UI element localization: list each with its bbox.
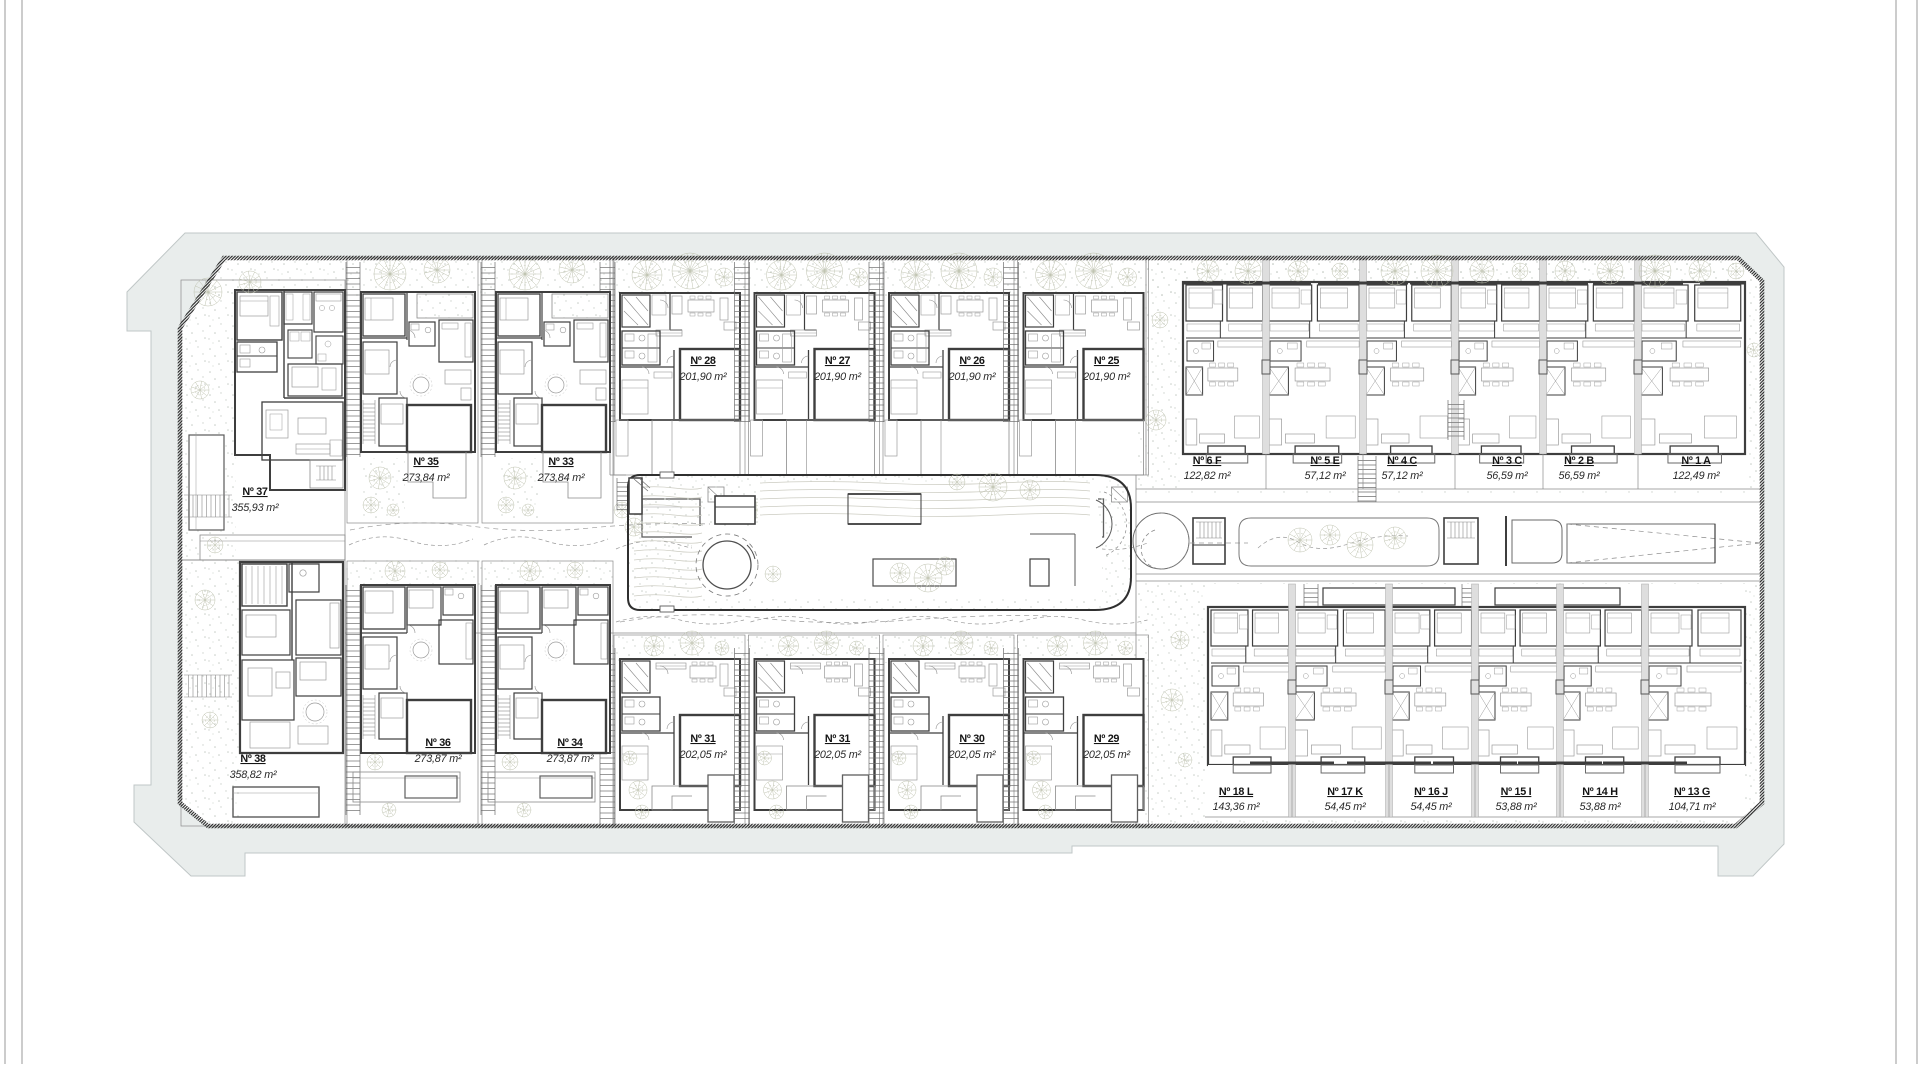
- svg-text:201,90 m²: 201,90 m²: [1082, 371, 1130, 383]
- svg-text:Nº 25: Nº 25: [1094, 355, 1120, 367]
- svg-text:Nº 14 H: Nº 14 H: [1582, 786, 1618, 798]
- svg-text:202,05 m²: 202,05 m²: [1082, 749, 1130, 761]
- svg-text:53,88 m²: 53,88 m²: [1495, 801, 1537, 813]
- svg-text:Nº 29: Nº 29: [1094, 733, 1120, 745]
- svg-text:122,49 m²: 122,49 m²: [1673, 470, 1720, 482]
- svg-text:143,36 m²: 143,36 m²: [1213, 801, 1260, 813]
- svg-text:54,45 m²: 54,45 m²: [1410, 801, 1452, 813]
- svg-text:Nº 3 C: Nº 3 C: [1492, 455, 1522, 467]
- svg-text:Nº 38: Nº 38: [240, 753, 266, 765]
- svg-text:Nº 18 L: Nº 18 L: [1219, 786, 1254, 798]
- svg-text:54,45 m²: 54,45 m²: [1324, 801, 1366, 813]
- svg-text:Nº 31: Nº 31: [825, 733, 851, 745]
- svg-text:201,90 m²: 201,90 m²: [679, 371, 727, 383]
- svg-text:Nº 34: Nº 34: [557, 737, 583, 749]
- svg-text:202,05 m²: 202,05 m²: [948, 749, 996, 761]
- svg-text:Nº 36: Nº 36: [425, 737, 451, 749]
- svg-text:273,84 m²: 273,84 m²: [402, 472, 450, 484]
- svg-text:104,71 m²: 104,71 m²: [1669, 801, 1716, 813]
- svg-text:Nº 35: Nº 35: [413, 456, 439, 468]
- svg-text:57,12 m²: 57,12 m²: [1304, 470, 1346, 482]
- svg-text:201,90 m²: 201,90 m²: [813, 371, 861, 383]
- svg-text:202,05 m²: 202,05 m²: [679, 749, 727, 761]
- svg-text:202,05 m²: 202,05 m²: [813, 749, 861, 761]
- svg-text:355,93 m²: 355,93 m²: [232, 502, 279, 514]
- svg-text:Nº 17 K: Nº 17 K: [1327, 786, 1363, 798]
- svg-text:Nº 13 G: Nº 13 G: [1674, 786, 1710, 798]
- svg-text:122,82 m²: 122,82 m²: [1184, 470, 1231, 482]
- svg-text:Nº 15 I: Nº 15 I: [1501, 786, 1532, 798]
- svg-text:Nº 4 C: Nº 4 C: [1387, 455, 1417, 467]
- svg-text:358,82 m²: 358,82 m²: [230, 769, 277, 781]
- svg-text:Nº 26: Nº 26: [959, 355, 985, 367]
- svg-text:Nº 28: Nº 28: [690, 355, 716, 367]
- svg-text:Nº 16 J: Nº 16 J: [1414, 786, 1448, 798]
- svg-text:273,87 m²: 273,87 m²: [546, 753, 594, 765]
- svg-text:Nº 5 E: Nº 5 E: [1310, 455, 1339, 467]
- svg-text:56,59 m²: 56,59 m²: [1558, 470, 1600, 482]
- svg-text:Nº 33: Nº 33: [548, 456, 574, 468]
- svg-text:Nº 30: Nº 30: [959, 733, 985, 745]
- svg-text:Nº 37: Nº 37: [242, 486, 268, 498]
- svg-text:56,59 m²: 56,59 m²: [1486, 470, 1528, 482]
- svg-text:273,87 m²: 273,87 m²: [414, 753, 462, 765]
- svg-text:Nº 6 F: Nº 6 F: [1193, 455, 1222, 467]
- svg-text:201,90 m²: 201,90 m²: [948, 371, 996, 383]
- svg-text:Nº 27: Nº 27: [825, 355, 851, 367]
- svg-text:Nº 2 B: Nº 2 B: [1564, 455, 1594, 467]
- svg-text:Nº 31: Nº 31: [690, 733, 716, 745]
- svg-text:273,84 m²: 273,84 m²: [537, 472, 585, 484]
- svg-text:57,12 m²: 57,12 m²: [1381, 470, 1423, 482]
- svg-text:Nº 1 A: Nº 1 A: [1681, 455, 1711, 467]
- svg-text:53,88 m²: 53,88 m²: [1579, 801, 1621, 813]
